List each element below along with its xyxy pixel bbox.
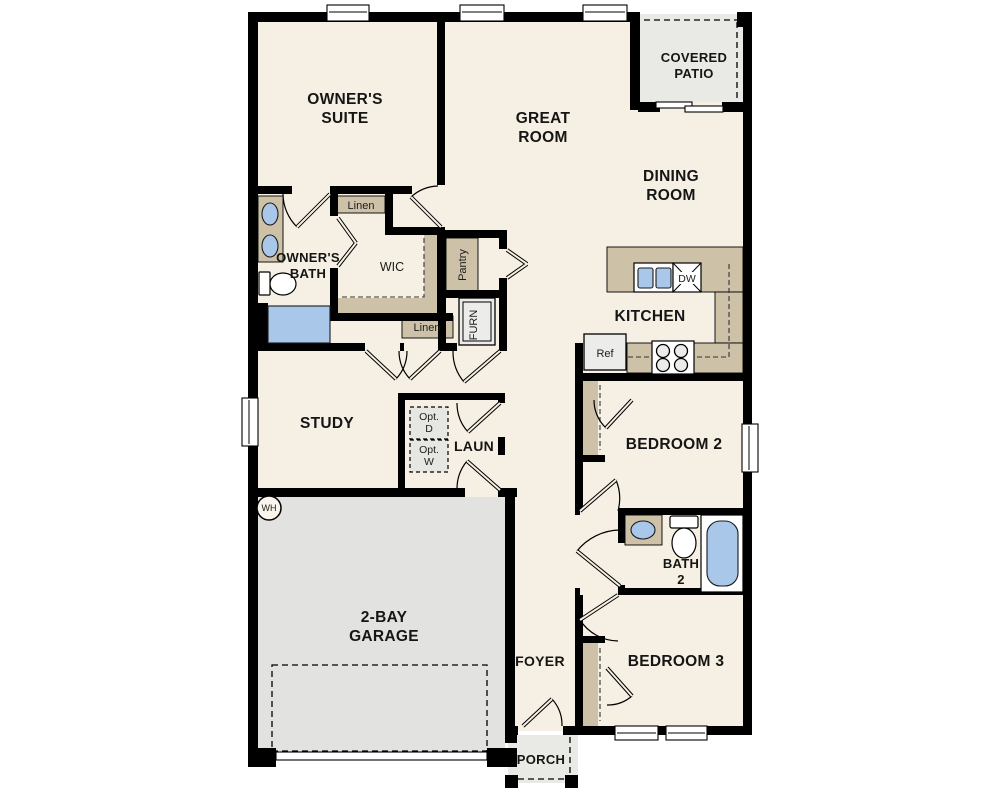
- linen-upper-label: Linen: [348, 200, 375, 212]
- bedroom2-label: BEDROOM 2: [626, 436, 723, 453]
- opt-washer-label-1: Opt.: [419, 444, 439, 456]
- garage-label-2: GARAGE: [349, 628, 419, 645]
- bedroom2-closet-shelf: [583, 381, 598, 455]
- bath2-sink: [631, 521, 655, 539]
- furnace-label: FURN: [468, 310, 480, 341]
- vanity-sink-top: [262, 203, 278, 225]
- opt-dryer-label-1: Opt.: [419, 411, 439, 423]
- window-great-room-left: [460, 5, 504, 21]
- owners-suite-label-1: OWNER'S: [307, 91, 383, 108]
- bath2-tub: [701, 515, 743, 592]
- porch-label: PORCH: [517, 752, 565, 767]
- garage-door-panel: [276, 752, 487, 760]
- pantry-label: Pantry: [457, 249, 469, 281]
- window-great-room-right: [583, 5, 627, 21]
- window-study: [242, 398, 258, 446]
- laundry-label: LAUN: [454, 438, 494, 454]
- covered-patio-label-1: COVERED: [661, 50, 727, 65]
- refrigerator-label: Ref: [596, 348, 614, 360]
- opt-dryer-label-2: D: [425, 423, 433, 435]
- bedroom3-closet-shelf: [583, 643, 598, 726]
- bath2-toilet-tank: [670, 516, 698, 528]
- covered-patio-label-2: PATIO: [674, 66, 713, 81]
- dining-room-label-1: DINING: [643, 168, 699, 185]
- window-bedroom3-right: [666, 726, 707, 740]
- great-room-label-2: ROOM: [518, 129, 567, 146]
- kitchen-label: KITCHEN: [615, 308, 686, 325]
- study-label: STUDY: [300, 415, 354, 432]
- bath2-toilet-bowl: [672, 528, 696, 558]
- bath2-label-1: BATH: [663, 556, 699, 571]
- dishwasher-label: DW: [678, 273, 696, 285]
- floor-plan-canvas: OWNER'S SUITE GREAT ROOM COVERED PATIO D…: [0, 0, 1000, 800]
- linen-lower-label: Linen: [414, 322, 441, 334]
- island-sink-basin-left: [638, 268, 653, 288]
- stove: [652, 341, 694, 374]
- owners-bath-label-1: OWNER'S: [276, 250, 340, 265]
- foyer-label: FOYER: [515, 653, 565, 669]
- bath2-label-2: 2: [677, 572, 685, 587]
- floor-plan-page: OWNER'S SUITE GREAT ROOM COVERED PATIO D…: [0, 0, 1000, 800]
- owners-toilet-tank: [259, 272, 270, 295]
- wic-label: WIC: [380, 260, 404, 274]
- window-bedroom2: [742, 424, 758, 472]
- bedroom3-label: BEDROOM 3: [628, 653, 725, 670]
- owners-shower: [268, 306, 330, 343]
- wic-shelf-bottom: [338, 298, 437, 313]
- dining-room-label-2: ROOM: [646, 187, 695, 204]
- window-bedroom3-left: [615, 726, 658, 740]
- opt-washer-label-2: W: [424, 456, 434, 468]
- owners-bath-label-2: BATH: [290, 266, 326, 281]
- window-owners-suite: [327, 5, 369, 21]
- owners-suite-label-2: SUITE: [321, 110, 368, 127]
- island-sink-basin-right: [656, 268, 671, 288]
- garage-label-1: 2-BAY: [361, 609, 408, 626]
- water-heater-label: WH: [262, 503, 277, 513]
- great-room-label-1: GREAT: [516, 110, 571, 127]
